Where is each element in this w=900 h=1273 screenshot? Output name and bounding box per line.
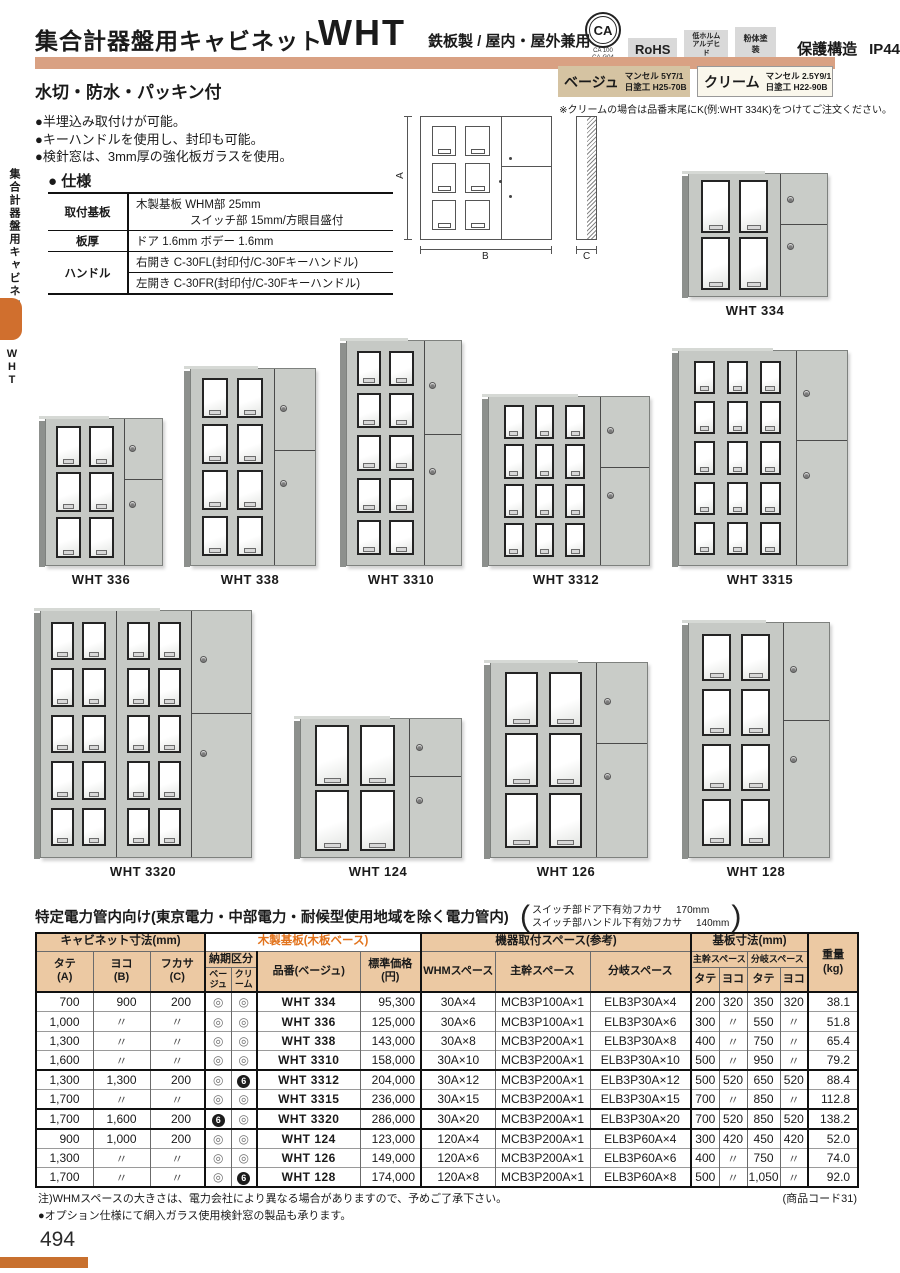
table-cell: 850 — [747, 1090, 780, 1110]
product-label: WHT 334 — [682, 303, 828, 318]
table-cell: ELB3P30A×15 — [590, 1090, 691, 1110]
table-cell: 650 — [747, 1070, 780, 1090]
col-delivery-cream: クリーム — [231, 967, 257, 992]
table-cell: 174,000 — [360, 1168, 421, 1188]
table-cell: 900 — [93, 992, 150, 1012]
switch-door — [601, 397, 649, 565]
screw-icon — [804, 473, 809, 478]
meter-window — [82, 622, 105, 660]
table-cell: 204,000 — [360, 1070, 421, 1090]
table-cell: ELB3P30A×10 — [590, 1051, 691, 1071]
bullet-3: ●検針窓は、3mm厚の強化板ガラスを使用。 — [35, 148, 292, 166]
table-cell: 〃 — [150, 1012, 205, 1032]
switch-door — [781, 174, 827, 296]
table-cell: 〃 — [719, 1168, 747, 1188]
table-cell: 〃 — [780, 1168, 808, 1188]
bullet-2: ●キーハンドルを使用し、封印も可能。 — [35, 131, 292, 149]
table-cell: 6 — [205, 1109, 231, 1129]
table-cell: 〃 — [150, 1031, 205, 1051]
meter-window — [741, 689, 770, 736]
col-bb-yoko: ヨコ — [780, 967, 808, 992]
product-label: WHT 336 — [39, 572, 163, 587]
cabinet-image — [688, 173, 828, 297]
meter-window — [51, 668, 74, 706]
page-title: 集合計器盤用キャビネット — [35, 22, 323, 56]
table-cell: 1,300 — [36, 1031, 93, 1051]
table-cell: 〃 — [719, 1031, 747, 1051]
table-cell: ELB3P60A×4 — [590, 1129, 691, 1149]
table-cell: 1,300 — [36, 1070, 93, 1090]
product-label: WHT 3312 — [482, 572, 650, 587]
screw-icon — [281, 406, 286, 411]
meter-window — [760, 401, 781, 434]
meter-window — [82, 808, 105, 846]
cabinet-image — [45, 418, 163, 566]
ca-badge: CA CA 100CA-G04 — [585, 12, 621, 61]
table-row: 1,700〃〃◎6WHT 128174,000120A×8MCB3P200A×1… — [36, 1168, 858, 1188]
table-cell: 〃 — [719, 1012, 747, 1032]
meter-window — [389, 393, 413, 428]
table-cell: 30A×6 — [421, 1012, 495, 1032]
drawing-front-view — [420, 116, 552, 240]
material-subtitle: 鉄板製 / 屋内・屋外兼用 — [428, 30, 591, 51]
meter-window — [158, 668, 181, 706]
table-cell: 38.1 — [808, 992, 858, 1012]
table-cell: MCB3P200A×1 — [495, 1070, 590, 1090]
meter-door — [689, 174, 781, 296]
cabinet-image — [300, 718, 462, 858]
meter-door — [301, 719, 410, 857]
switch-door — [597, 663, 647, 857]
drawing-meter-door — [421, 117, 502, 239]
table-cell: 6 — [231, 1070, 257, 1090]
table-cell: 750 — [747, 1031, 780, 1051]
meter-door — [679, 351, 797, 565]
meter-window — [694, 361, 715, 394]
meter-window — [202, 424, 228, 464]
switch-door — [410, 719, 461, 857]
table-cell: 〃 — [780, 1012, 808, 1032]
meter-window — [702, 744, 731, 791]
meter-window — [727, 361, 748, 394]
meter-door — [46, 419, 125, 565]
table-cell: 400 — [691, 1031, 719, 1051]
meter-window — [56, 517, 81, 558]
meter-door — [191, 369, 275, 565]
product-figure: WHT 338 — [184, 368, 316, 587]
meter-window — [760, 441, 781, 474]
meter-window — [565, 484, 585, 518]
table-cell: 500 — [691, 1051, 719, 1071]
col-group-wood-base: 木製基板(木板ベース) — [205, 933, 421, 951]
table-cell: 30A×12 — [421, 1070, 495, 1090]
product-figure: WHT 3312 — [482, 396, 650, 587]
screw-icon — [417, 745, 422, 750]
table-cell: 30A×10 — [421, 1051, 495, 1071]
table-cell: MCB3P200A×1 — [495, 1129, 590, 1149]
feature-bullets: ●半埋込み取付けが可能。 ●キーハンドルを使用し、封印も可能。 ●検針窓は、3m… — [35, 113, 292, 166]
meter-window — [727, 441, 748, 474]
table-cell: 1,000 — [93, 1129, 150, 1149]
spec-value-thickness: ドア 1.6mm ボデー 1.6mm — [128, 231, 393, 252]
table-cell: 200 — [691, 992, 719, 1012]
screw-icon — [804, 391, 809, 396]
meter-window — [727, 522, 748, 555]
col-main-space: 主幹スペース — [495, 951, 590, 992]
product-label: WHT 128 — [682, 864, 830, 879]
table-cell: 1,700 — [36, 1090, 93, 1110]
table-cell: 450 — [747, 1129, 780, 1149]
table-cell: WHT 3312 — [257, 1070, 360, 1090]
table-cell: 700 — [36, 992, 93, 1012]
cabinet-image — [488, 396, 650, 566]
table-cell: ◎ — [231, 1051, 257, 1071]
table-cell: ELB3P30A×8 — [590, 1031, 691, 1051]
product-label: WHT 338 — [184, 572, 316, 587]
meter-window — [504, 484, 524, 518]
dim-label-c: C — [583, 251, 590, 262]
table-cell: 700 — [691, 1090, 719, 1110]
beige-codes: マンセル 5Y7/1日塗工 H25-70B — [625, 71, 687, 92]
meter-window — [565, 523, 585, 557]
product-figure: WHT 128 — [682, 622, 830, 879]
product-figure: WHT 336 — [39, 418, 163, 587]
table-cell: 1,000 — [36, 1012, 93, 1032]
table-cell: 500 — [691, 1168, 719, 1188]
table-cell: 〃 — [780, 1051, 808, 1071]
table-cell: 〃 — [93, 1031, 150, 1051]
col-delivery: 納期区分 — [205, 951, 257, 967]
meter-window — [56, 472, 81, 513]
col-whm: WHMスペース — [421, 951, 495, 992]
table-cell: 〃 — [93, 1090, 150, 1110]
col-group-equipment: 機器取付スペース(参考) — [421, 933, 691, 951]
catalog-page: 集合計器盤用キャビネット WHT 集合計器盤用キャビネット WHT 鉄板製 / … — [0, 0, 900, 1273]
dim-line-a — [407, 116, 408, 240]
screw-icon — [608, 493, 613, 498]
meter-door — [117, 611, 193, 857]
table-cell: 520 — [780, 1070, 808, 1090]
meter-window — [357, 478, 381, 513]
screw-icon — [281, 481, 286, 486]
col-tate: タテ(A) — [36, 951, 93, 992]
table-cell: WHT 3315 — [257, 1090, 360, 1110]
meter-door — [489, 397, 601, 565]
switch-door — [784, 623, 829, 857]
spec-value-handle-right: 右開き C-30FL(封印付/C-30Fキーハンドル) — [128, 252, 393, 273]
switch-door — [797, 351, 847, 565]
meter-window — [51, 761, 74, 799]
table-cell: ◎ — [205, 1168, 231, 1188]
col-branch-space: 分岐スペース — [590, 951, 691, 992]
meter-window — [202, 516, 228, 556]
table-cell: 30A×4 — [421, 992, 495, 1012]
table-cell: 520 — [719, 1109, 747, 1129]
cabinet-image — [40, 610, 252, 858]
table-cell: ◎ — [231, 1031, 257, 1051]
spec-label-handle: ハンドル — [48, 252, 128, 295]
screw-icon — [130, 446, 135, 451]
table-title: 特定電力管内向け(東京電力・中部電力・耐候型使用地域を除く電力管内) — [35, 906, 509, 927]
meter-window — [51, 808, 74, 846]
table-cell: MCB3P200A×1 — [495, 1168, 590, 1188]
table-cell: 158,000 — [360, 1051, 421, 1071]
table-row: 1,7001,6002006◎WHT 3320286,00030A×20MCB3… — [36, 1109, 858, 1129]
cabinet-image — [678, 350, 848, 566]
meter-window — [565, 444, 585, 478]
col-board-main: 主幹スペース — [691, 951, 747, 967]
meter-window — [202, 378, 228, 418]
spec-heading: ● 仕様 — [48, 170, 91, 191]
table-cell: 〃 — [780, 1031, 808, 1051]
table-cell: 420 — [719, 1129, 747, 1149]
table-cell: MCB3P200A×1 — [495, 1031, 590, 1051]
table-row: 1,000〃〃◎◎WHT 336125,00030A×6MCB3P100A×1E… — [36, 1012, 858, 1032]
col-bb-tate: タテ — [747, 967, 780, 992]
meter-window — [158, 808, 181, 846]
table-cell: 900 — [36, 1129, 93, 1149]
dimension-drawing: A B C — [398, 108, 603, 278]
meter-window — [694, 482, 715, 515]
table-cell: 236,000 — [360, 1090, 421, 1110]
meter-window — [82, 715, 105, 753]
dim-line-b — [420, 249, 552, 250]
screw-icon — [791, 667, 796, 672]
table-cell: 74.0 — [808, 1148, 858, 1168]
table-cell: 500 — [691, 1070, 719, 1090]
table-cell: 286,000 — [360, 1109, 421, 1129]
table-cell: 200 — [150, 1070, 205, 1090]
meter-window — [727, 401, 748, 434]
table-row: 1,300〃〃◎◎WHT 126149,000120A×6MCB3P200A×1… — [36, 1148, 858, 1168]
meter-window — [694, 401, 715, 434]
meter-window — [549, 733, 582, 788]
meter-window — [127, 668, 150, 706]
meter-window — [82, 668, 105, 706]
sidebar-model-label: WHT — [6, 348, 18, 387]
table-cell: 92.0 — [808, 1168, 858, 1188]
meter-window — [89, 472, 114, 513]
meter-door — [347, 341, 425, 565]
meter-window — [237, 516, 263, 556]
product-code-note: (商品コード31) — [0, 1190, 857, 1206]
meter-window — [505, 672, 538, 727]
screw-icon — [130, 502, 135, 507]
table-cell: 〃 — [150, 1051, 205, 1071]
col-weight: 重量(kg) — [808, 933, 858, 992]
meter-window — [741, 799, 770, 846]
series-model: WHT — [318, 12, 406, 54]
meter-door — [41, 611, 117, 857]
table-cell: MCB3P200A×1 — [495, 1148, 590, 1168]
meter-window — [158, 622, 181, 660]
meter-window — [389, 520, 413, 555]
table-cell: 700 — [691, 1109, 719, 1129]
meter-window — [760, 361, 781, 394]
table-cell: 95,300 — [360, 992, 421, 1012]
table-row: 1,600〃〃◎◎WHT 3310158,00030A×10MCB3P200A×… — [36, 1051, 858, 1071]
table-cell: 950 — [747, 1051, 780, 1071]
table-cell: 51.8 — [808, 1012, 858, 1032]
spec-label-thickness: 板厚 — [48, 231, 128, 252]
table-cell: WHT 124 — [257, 1129, 360, 1149]
meter-window — [127, 761, 150, 799]
spec-value-board: 木製基板 WHM部 25mmスイッチ部 15mm/方眼目盛付 — [128, 193, 393, 231]
table-cell: ◎ — [231, 992, 257, 1012]
table-cell: ◎ — [205, 1012, 231, 1032]
table-cell: WHT 336 — [257, 1012, 360, 1032]
table-cell: ◎ — [205, 1031, 231, 1051]
price-table: キャビネット寸法(mm) 木製基板(木板ベース) 機器取付スペース(参考) 基板… — [35, 932, 859, 1188]
table-cell: 420 — [780, 1129, 808, 1149]
table-cell: 520 — [780, 1109, 808, 1129]
table-cell: MCB3P200A×1 — [495, 1051, 590, 1071]
cream-codes: マンセル 2.5Y9/1日塗工 H22-90B — [766, 71, 832, 92]
product-label: WHT 124 — [294, 864, 462, 879]
product-figure: WHT 124 — [294, 718, 462, 879]
table-cell: 400 — [691, 1148, 719, 1168]
meter-window — [701, 180, 730, 233]
table-cell: 320 — [719, 992, 747, 1012]
product-label: WHT 3315 — [672, 572, 848, 587]
screw-icon — [201, 657, 206, 662]
table-cell: ELB3P30A×4 — [590, 992, 691, 1012]
meter-window — [389, 478, 413, 513]
table-cell: ELB3P30A×20 — [590, 1109, 691, 1129]
circled-six-mark: 6 — [212, 1114, 225, 1127]
meter-window — [389, 435, 413, 470]
table-cell: 〃 — [93, 1148, 150, 1168]
table-cell: ◎ — [231, 1090, 257, 1110]
certification-badges: CA CA 100CA-G04 RoHS 低ホルムアルデヒド 粉体塗装 保護構造… — [585, 12, 900, 61]
product-label: WHT 126 — [484, 864, 648, 879]
spec-label-board: 取付基板 — [48, 193, 128, 231]
meter-window — [741, 744, 770, 791]
dim-line-c — [576, 249, 597, 250]
dim-label-a: A — [395, 172, 406, 179]
meter-door — [689, 623, 784, 857]
table-cell: 1,600 — [36, 1051, 93, 1071]
screw-icon — [430, 383, 435, 388]
product-label: WHT 3310 — [340, 572, 462, 587]
ca-logo-icon: CA — [585, 12, 621, 48]
table-row: 9001,000200◎◎WHT 124123,000120A×4MCB3P20… — [36, 1129, 858, 1149]
switch-door — [125, 419, 162, 565]
table-cell: ELB3P30A×12 — [590, 1070, 691, 1090]
meter-window — [535, 405, 555, 439]
table-cell: MCB3P100A×1 — [495, 1012, 590, 1032]
table-cell: 750 — [747, 1148, 780, 1168]
table-cell: WHT 126 — [257, 1148, 360, 1168]
table-cell: 112.8 — [808, 1090, 858, 1110]
meter-window — [505, 733, 538, 788]
meter-window — [694, 522, 715, 555]
table-cell: 350 — [747, 992, 780, 1012]
table-cell: ◎ — [205, 1129, 231, 1149]
table-cell: 52.0 — [808, 1129, 858, 1149]
screw-icon — [605, 699, 610, 704]
meter-window — [702, 689, 731, 736]
drawing-side-view — [576, 116, 597, 240]
table-cell: 〃 — [93, 1051, 150, 1071]
col-group-board: 基板寸法(mm) — [691, 933, 808, 951]
meter-window — [357, 520, 381, 555]
table-cell: ◎ — [205, 1148, 231, 1168]
table-cell: ◎ — [205, 992, 231, 1012]
table-cell: WHT 334 — [257, 992, 360, 1012]
table-cell: 88.4 — [808, 1070, 858, 1090]
circled-six-mark: 6 — [237, 1075, 250, 1088]
meter-window — [504, 405, 524, 439]
table-cell: ◎ — [231, 1129, 257, 1149]
table-cell: 1,700 — [36, 1109, 93, 1129]
table-cell: 200 — [150, 1129, 205, 1149]
page-footer-bar — [0, 1257, 88, 1268]
table-cell: ◎ — [205, 1090, 231, 1110]
cream-order-note: ※クリームの場合は品番末尾にK(例:WHT 334K)をつけてご注文ください。 — [559, 101, 892, 116]
table-cell: 300 — [691, 1012, 719, 1032]
table-cell: MCB3P200A×1 — [495, 1109, 590, 1129]
meter-window — [82, 761, 105, 799]
meter-window — [739, 180, 768, 233]
meter-window — [535, 444, 555, 478]
table-cell: 30A×15 — [421, 1090, 495, 1110]
table-row: 1,300〃〃◎◎WHT 338143,00030A×8MCB3P200A×1E… — [36, 1031, 858, 1051]
table-cell: 〃 — [719, 1148, 747, 1168]
table-cell: 120A×6 — [421, 1148, 495, 1168]
col-group-cabinet: キャビネット寸法(mm) — [36, 933, 205, 951]
switch-door — [275, 369, 315, 565]
bullet-1: ●半埋込み取付けが可能。 — [35, 113, 292, 131]
meter-window — [315, 725, 349, 786]
meter-window — [741, 634, 770, 681]
meter-window — [702, 799, 731, 846]
table-cell: WHT 338 — [257, 1031, 360, 1051]
meter-window — [89, 517, 114, 558]
meter-window — [549, 672, 582, 727]
screw-icon — [788, 197, 793, 202]
table-cell: 850 — [747, 1109, 780, 1129]
product-figure: WHT 3315 — [672, 350, 848, 587]
table-row: 1,700〃〃◎◎WHT 3315236,00030A×15MCB3P200A×… — [36, 1090, 858, 1110]
page-number: 494 — [40, 1228, 75, 1252]
table-cell: 1,600 — [93, 1109, 150, 1129]
screw-icon — [791, 757, 796, 762]
meter-window — [760, 522, 781, 555]
product-figure: WHT 334 — [682, 173, 828, 318]
table-cell: 550 — [747, 1012, 780, 1032]
table-cell: 〃 — [780, 1148, 808, 1168]
meter-window — [360, 790, 394, 851]
table-cell: 1,050 — [747, 1168, 780, 1188]
meter-window — [694, 441, 715, 474]
table-cell: 〃 — [150, 1090, 205, 1110]
table-cell: 138.2 — [808, 1109, 858, 1129]
table-cell: 30A×20 — [421, 1109, 495, 1129]
product-figure: WHT 126 — [484, 662, 648, 879]
switch-door — [425, 341, 461, 565]
meter-window — [51, 622, 74, 660]
col-bm-yoko: ヨコ — [719, 967, 747, 992]
cabinet-image — [190, 368, 316, 566]
meter-window — [760, 482, 781, 515]
color-chip-cream: クリーム マンセル 2.5Y9/1日塗工 H22-90B — [697, 66, 833, 97]
meter-window — [535, 484, 555, 518]
product-label: WHT 3320 — [34, 864, 252, 879]
col-bm-tate: タテ — [691, 967, 719, 992]
table-cell: 120A×4 — [421, 1129, 495, 1149]
meter-window — [727, 482, 748, 515]
